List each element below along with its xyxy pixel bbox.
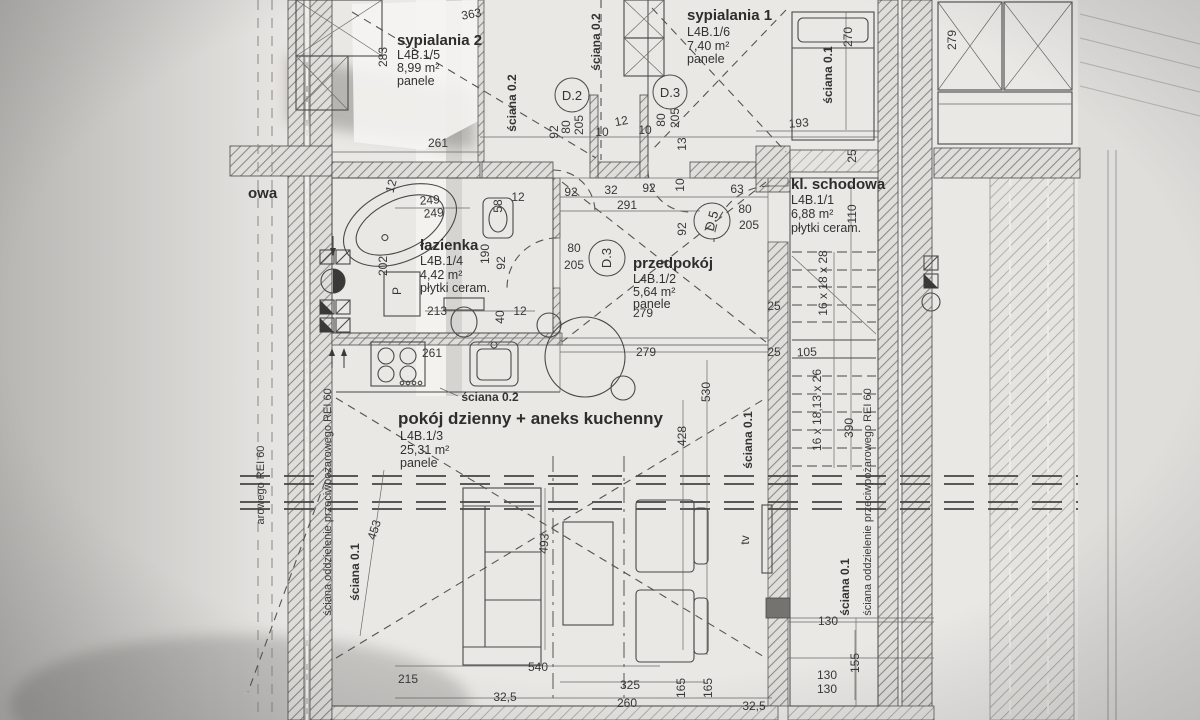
room-floor: panele [397, 74, 435, 88]
door-label-d3-bath: D.3 [599, 248, 614, 268]
neighbor-room-fragment: owa [248, 185, 278, 202]
dim-label: 249 [423, 205, 444, 220]
dim-label: 130 [818, 614, 838, 628]
dim-label: 260 [617, 696, 637, 710]
room-unit: L4B.1/6 [687, 25, 730, 39]
room-unit: L4B.1/1 [791, 193, 834, 207]
shaft-block [766, 598, 790, 618]
wall-hall-top-c [690, 162, 756, 178]
room-floor: płytki ceram. [420, 281, 490, 295]
dim-label: 205 [572, 115, 586, 135]
dim-label: 202 [376, 256, 390, 276]
room-floor: panele [687, 52, 725, 66]
dim-label: 261 [428, 136, 448, 150]
dim-label: 205 [668, 108, 682, 128]
wall-bed2-right [478, 0, 484, 162]
wall-top-right [934, 148, 1080, 178]
tv-label: tv [738, 535, 752, 544]
dim-label: 63 [730, 182, 744, 196]
stair-flight-upper-label: 16 x 18 x 28 [816, 250, 830, 316]
wall-label-sciana01-a: ściana 0.1 [821, 46, 835, 104]
wall-bottom-b [788, 706, 934, 720]
dim-label: 92 [494, 256, 508, 270]
wall-hall-top-a [482, 162, 553, 178]
dim-label: 279 [633, 306, 653, 320]
dim-label: 92 [564, 185, 578, 199]
wall-bottom-a [332, 706, 778, 720]
dim-label: 205 [739, 218, 759, 232]
party-wall-right-a [878, 0, 898, 720]
wall-bath-right-a [553, 178, 560, 238]
dim-label: 92 [642, 181, 656, 195]
wall-label-sciana01-c: ściana 0.1 [838, 558, 852, 616]
floorplan-drawing: D.2 D.3 D.3 D.5 sypialania 2 L4B.1/5 8,9… [0, 0, 1200, 720]
room-floor: panele [400, 456, 438, 470]
dim-label: 80 [567, 241, 581, 255]
wall-label-sciana01-b: ściana 0.1 [741, 411, 755, 469]
fire-wall-label-fragment: arowego REI 60 [255, 446, 267, 525]
dim-label: 540 [528, 660, 548, 674]
dim-label: 291 [617, 198, 637, 212]
washer-label: P [390, 287, 404, 295]
stair-flight-lower-label: 16 x 18,13 x 26 [810, 369, 824, 451]
dim-label: 155 [848, 653, 862, 673]
room-area: 6,88 m² [791, 207, 833, 221]
dim-label: 215 [398, 672, 418, 686]
dim-label: 80 [559, 120, 573, 134]
room-name: kl. schodowa [791, 176, 886, 193]
wall-label-sciana02-b: ściana 0.2 [589, 13, 603, 71]
room-area: 25,31 m² [400, 443, 449, 457]
wall-bath-top [332, 162, 480, 178]
room-name: pokój dzienny + aneks kuchenny [398, 409, 664, 428]
dim-label: 110 [845, 204, 859, 223]
dim-label: 205 [564, 258, 584, 272]
neighbor-wall-band [990, 150, 1074, 720]
dim-label: 261 [422, 346, 442, 360]
room-name: sypialania 2 [397, 32, 482, 49]
dim-label: 105 [796, 344, 817, 359]
room-unit: L4B.1/3 [400, 429, 443, 443]
dim-label: 80 [738, 202, 752, 216]
dim-label: 325 [620, 678, 640, 692]
fire-wall-label-left: ściana oddzielenie przeciwpożarowego REI… [322, 388, 334, 615]
dim-label: 25 [767, 299, 781, 313]
dim-label: 10 [595, 125, 609, 139]
dim-label: 270 [841, 27, 855, 47]
room-unit: L4B.1/4 [420, 254, 463, 268]
dim-label: 25 [767, 345, 781, 359]
dim-label: 165 [674, 678, 688, 698]
dim-label: 10 [638, 123, 652, 137]
dim-label: 283 [376, 47, 390, 67]
dim-label: 25 [845, 149, 859, 163]
dim-label: 530 [699, 382, 713, 402]
door-label-d3-top: D.3 [660, 85, 680, 100]
room-name: przedpokój [633, 255, 713, 272]
dim-label: 279 [636, 345, 656, 359]
dim-label: 12 [511, 190, 525, 204]
room-name: łazienka [420, 237, 479, 254]
dim-label: 165 [701, 678, 715, 698]
room-area: 8,99 m² [397, 61, 439, 75]
room-name: sypialania 1 [687, 7, 772, 24]
dim-label: 130 [817, 682, 837, 696]
dim-label: 390 [842, 418, 856, 438]
dim-label: 80 [654, 113, 668, 127]
dim-label: 193 [788, 115, 809, 130]
wall-top-left [230, 146, 332, 176]
dim-label: 40 [493, 310, 507, 324]
room-area: 4,42 m² [420, 268, 462, 282]
dim-label: 493 [536, 533, 552, 554]
party-wall-right-b [902, 0, 932, 720]
room-area: 7,40 m² [687, 39, 729, 53]
paper-left-shade [0, 0, 300, 720]
wall-label-sciana01-d: ściana 0.1 [348, 543, 362, 601]
dim-label: 428 [675, 426, 689, 446]
dim-label: 92 [675, 222, 689, 236]
dim-label: 190 [478, 244, 492, 264]
wall-bath-bottom [332, 333, 562, 345]
paper-right-edge [1078, 0, 1200, 720]
dim-label: 13 [675, 137, 689, 151]
dim-label: 213 [427, 304, 447, 318]
wall-label-sciana02-c: ściana 0.2 [461, 390, 519, 404]
wall-stair-west-a [768, 178, 788, 186]
dim-label: 32 [604, 183, 618, 197]
room-unit: L4B.1/2 [633, 272, 676, 286]
door-label-d2: D.2 [562, 88, 582, 103]
dim-label: 279 [945, 30, 959, 50]
floorplan-photo: D.2 D.3 D.3 D.5 sypialania 2 L4B.1/5 8,9… [0, 0, 1200, 720]
fire-wall-label-right: ściana oddzielenie przeciwpożarowego REI… [862, 388, 874, 615]
dim-label: 12 [614, 113, 630, 129]
dim-label: 32,5 [493, 690, 517, 704]
wall-stair-top [790, 150, 878, 172]
wall-hall-top-b [598, 162, 640, 178]
room-unit: L4B.1/5 [397, 48, 440, 62]
dim-label: 130 [817, 668, 837, 682]
dim-label: 12 [513, 304, 527, 318]
dim-label: 32,5 [742, 699, 766, 713]
wall-label-sciana02-a: ściana 0.2 [505, 74, 519, 132]
dim-label: 10 [673, 178, 687, 192]
dim-label: 58 [491, 199, 505, 213]
